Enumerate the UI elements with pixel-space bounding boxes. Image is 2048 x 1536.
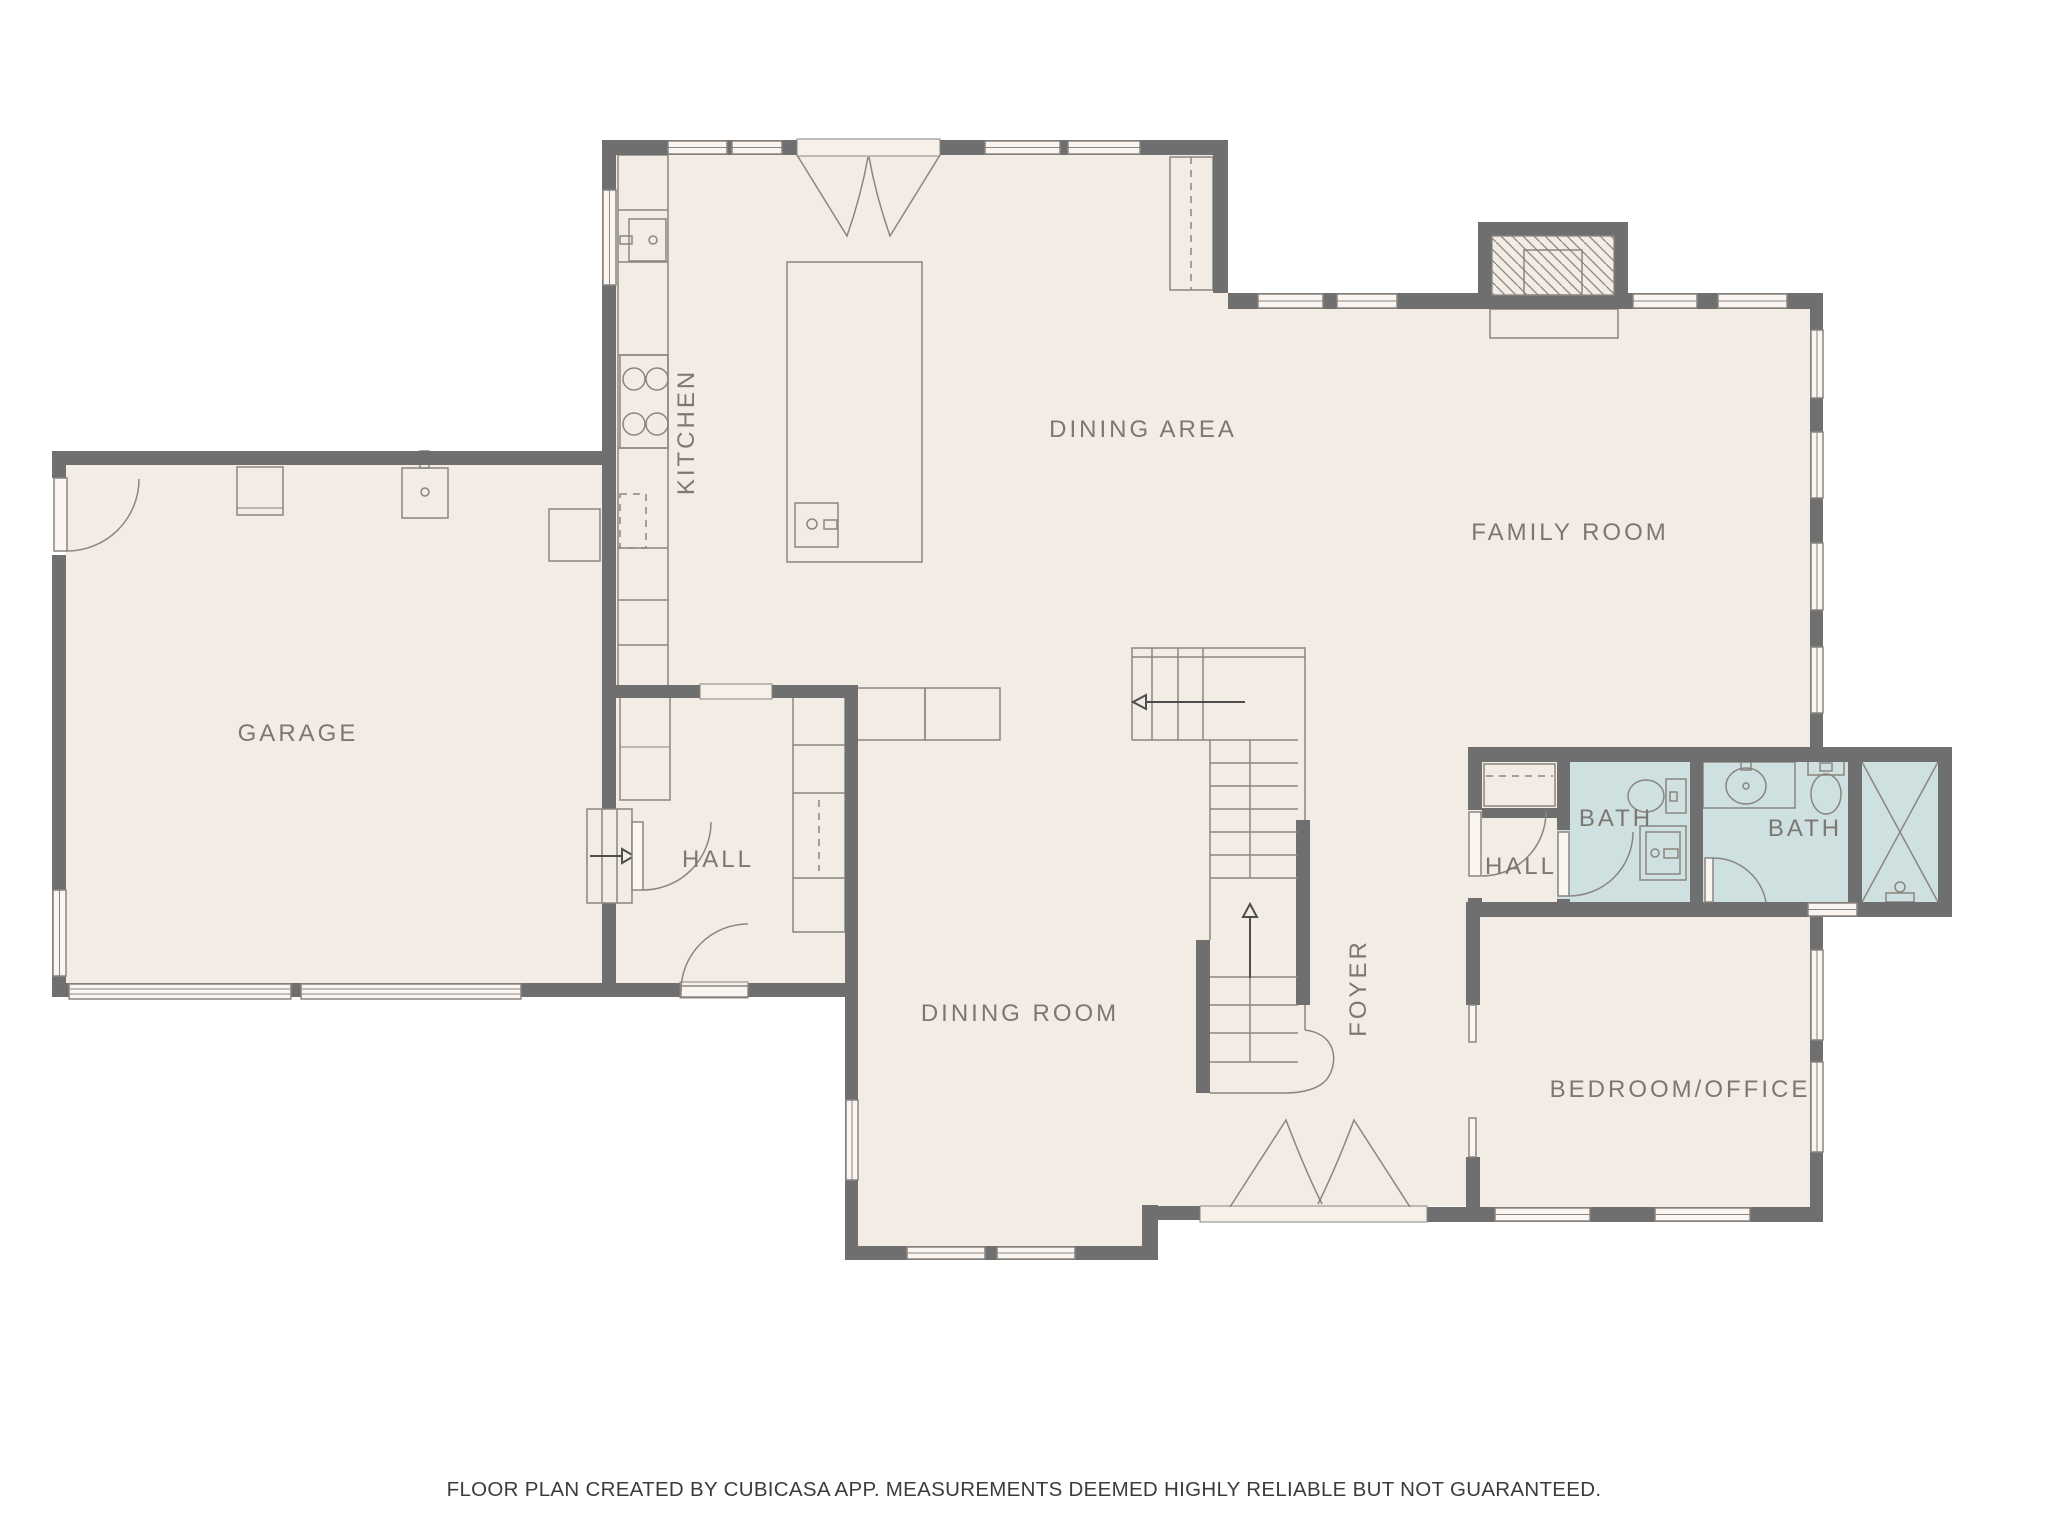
label-foyer: FOYER: [1345, 939, 1372, 1037]
stair-wall-left: [1196, 940, 1210, 1093]
water-heater: [549, 509, 600, 561]
label-bath-small: BATH: [1579, 805, 1653, 832]
footer-disclaimer: FLOOR PLAN CREATED BY CUBICASA APP. MEAS…: [447, 1478, 1602, 1501]
label-bedroom-office: BEDROOM/OFFICE: [1550, 1076, 1811, 1103]
label-dining-area: DINING AREA: [1049, 416, 1237, 443]
label-dining-room: DINING ROOM: [921, 1000, 1119, 1027]
label-family-room: FAMILY ROOM: [1471, 519, 1668, 546]
label-garage: GARAGE: [238, 720, 359, 747]
label-kitchen: KITCHEN: [673, 369, 700, 495]
floor-plan-page: GARAGE KITCHEN DINING AREA FAMILY ROOM H…: [0, 0, 2048, 1536]
fireplace: [1478, 222, 1628, 309]
kitchen-hall-opening: [700, 684, 772, 699]
entry-threshold: [1200, 1206, 1427, 1222]
label-hall-mud: HALL: [682, 846, 754, 873]
garage-steps: [587, 809, 634, 903]
patio-door-threshold: [797, 139, 940, 156]
label-bath-main: BATH: [1768, 815, 1842, 842]
label-hall-bath: HALL: [1485, 853, 1557, 880]
floor-plan: GARAGE KITCHEN DINING AREA FAMILY ROOM H…: [0, 0, 2048, 1536]
room-bedroom-floor: [1466, 902, 1823, 1222]
hearth: [1490, 309, 1618, 338]
stair-wall-right: [1296, 820, 1310, 1005]
